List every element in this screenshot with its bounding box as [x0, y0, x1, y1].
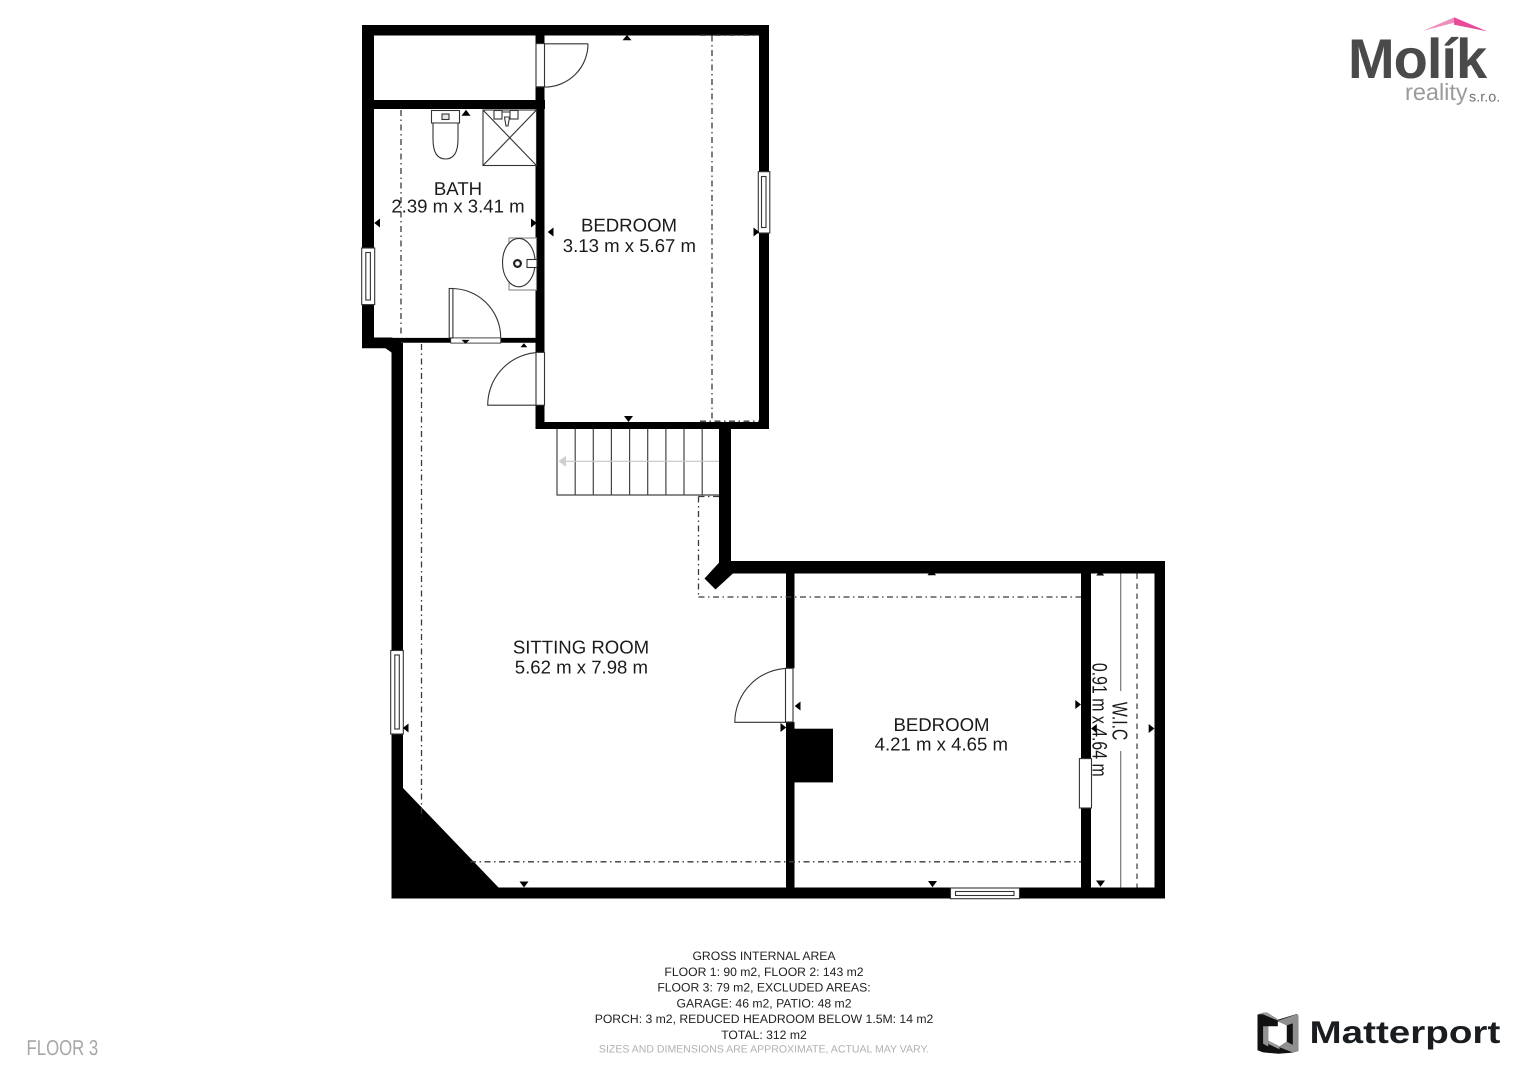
svg-text:GARAGE: 46 m2, PATIO: 48 m2: GARAGE: 46 m2, PATIO: 48 m2: [677, 996, 852, 1010]
svg-text:0.91 m x 4.64 m: 0.91 m x 4.64 m: [1087, 663, 1110, 777]
svg-text:BEDROOM: BEDROOM: [893, 714, 989, 735]
svg-text:2.39 m x 3.41 m: 2.39 m x 3.41 m: [391, 196, 524, 217]
svg-text:5.62 m x 7.98 m: 5.62 m x 7.98 m: [515, 656, 648, 677]
svg-text:FLOOR 1: 90 m2, FLOOR 2: 143 m: FLOOR 1: 90 m2, FLOOR 2: 143 m2: [664, 965, 863, 979]
svg-text:BEDROOM: BEDROOM: [581, 215, 677, 236]
svg-text:SIZES AND DIMENSIONS ARE APPRO: SIZES AND DIMENSIONS ARE APPROXIMATE, AC…: [599, 1044, 929, 1056]
svg-text:PORCH: 3 m2, REDUCED HEADROOM: PORCH: 3 m2, REDUCED HEADROOM BELOW 1.5M…: [595, 1012, 934, 1026]
svg-text:s.r.o.: s.r.o.: [1469, 90, 1500, 106]
svg-text:FLOOR 3: 79 m2, EXCLUDED AREAS: FLOOR 3: 79 m2, EXCLUDED AREAS:: [657, 981, 870, 995]
svg-text:SITTING ROOM: SITTING ROOM: [513, 636, 649, 657]
svg-text:FLOOR 3: FLOOR 3: [27, 1036, 99, 1060]
svg-text:Matterport: Matterport: [1310, 1014, 1501, 1050]
svg-text:reality: reality: [1405, 79, 1468, 105]
svg-text:W.I.C: W.I.C: [1107, 702, 1131, 741]
svg-text:GROSS INTERNAL AREA: GROSS INTERNAL AREA: [692, 949, 836, 963]
svg-text:4.21 m x 4.65 m: 4.21 m x 4.65 m: [875, 734, 1008, 755]
svg-text:TOTAL: 312 m2: TOTAL: 312 m2: [721, 1028, 807, 1042]
svg-text:3.13 m x 5.67 m: 3.13 m x 5.67 m: [563, 235, 696, 256]
